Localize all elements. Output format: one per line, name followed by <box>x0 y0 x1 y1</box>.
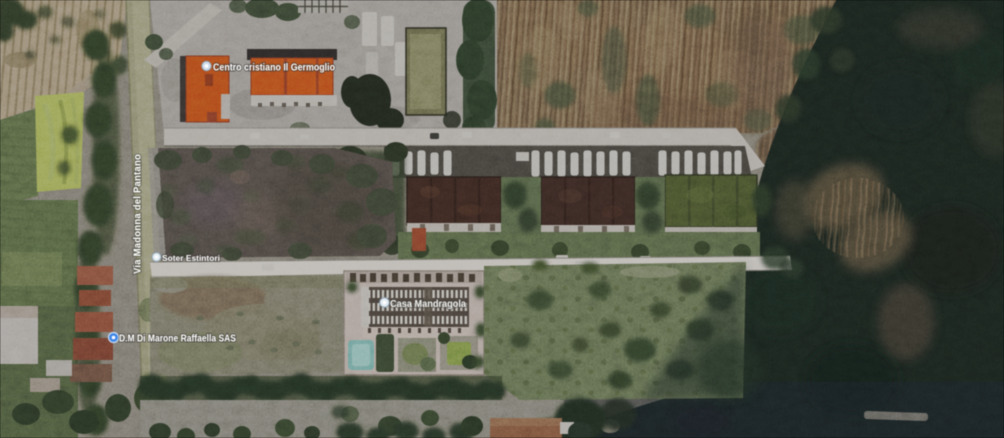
svg-text:D.M Di Marone Raffaella SAS: D.M Di Marone Raffaella SAS <box>119 334 236 345</box>
svg-text:Soter Estintori: Soter Estintori <box>162 253 220 263</box>
svg-text:Centro cristiano Il Germoglio: Centro cristiano Il Germoglio <box>213 63 335 74</box>
svg-text:Via Madonna del Pantano: Via Madonna del Pantano <box>133 154 144 274</box>
svg-text:Casa Mandragola: Casa Mandragola <box>390 299 466 310</box>
